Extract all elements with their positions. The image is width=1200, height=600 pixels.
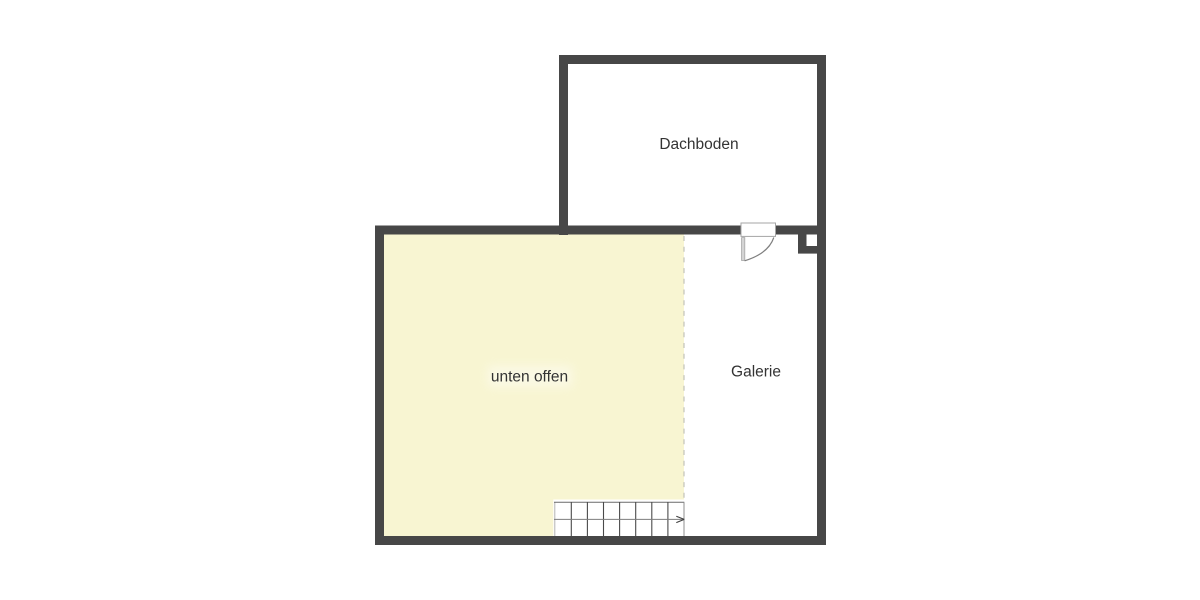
- svg-text:Galerie: Galerie: [731, 364, 781, 381]
- svg-text:unten offen: unten offen: [491, 369, 568, 386]
- svg-text:Dachboden: Dachboden: [659, 136, 738, 153]
